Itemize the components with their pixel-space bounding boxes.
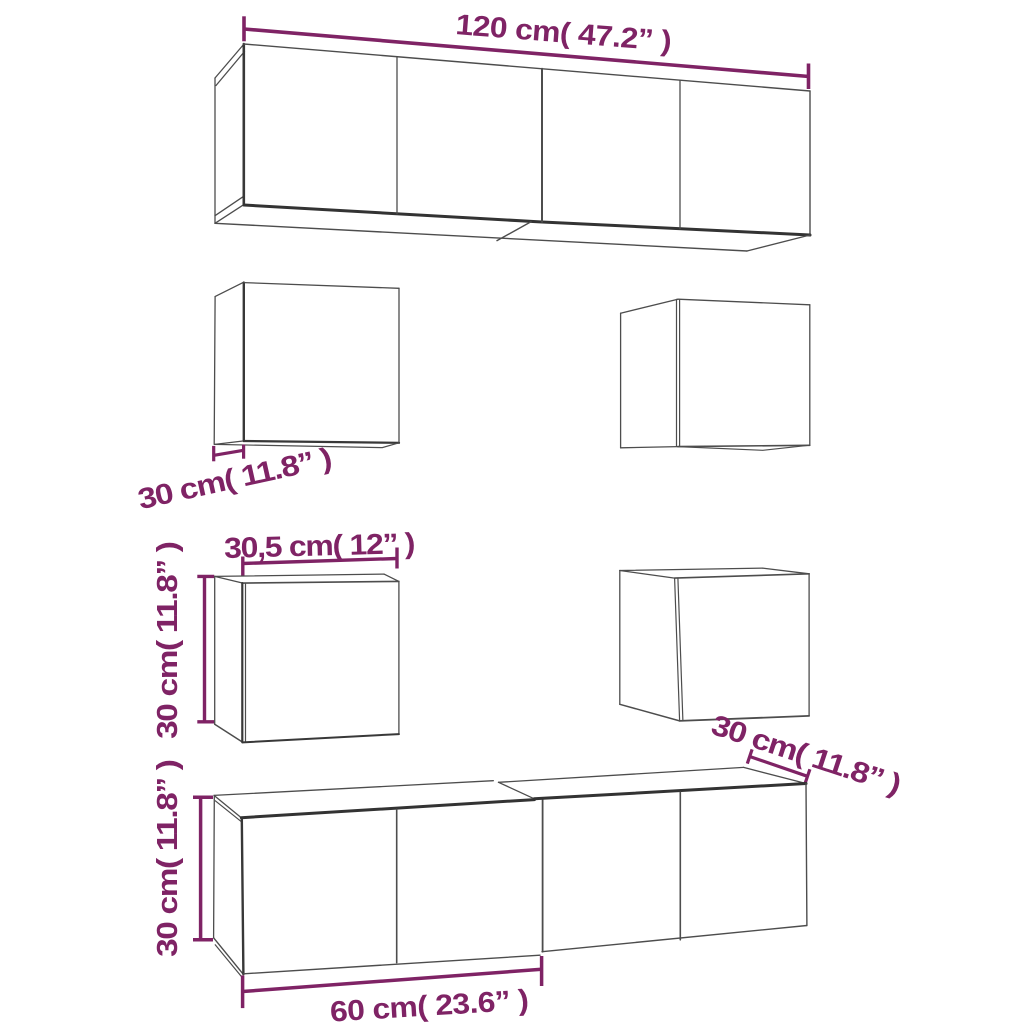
svg-text:30,5 cm( 12” ): 30,5 cm( 12” ) <box>224 527 416 564</box>
svg-text:30 cm( 11.8” ): 30 cm( 11.8” ) <box>151 759 183 957</box>
svg-text:30 cm( 11.8” ): 30 cm( 11.8” ) <box>151 541 183 739</box>
